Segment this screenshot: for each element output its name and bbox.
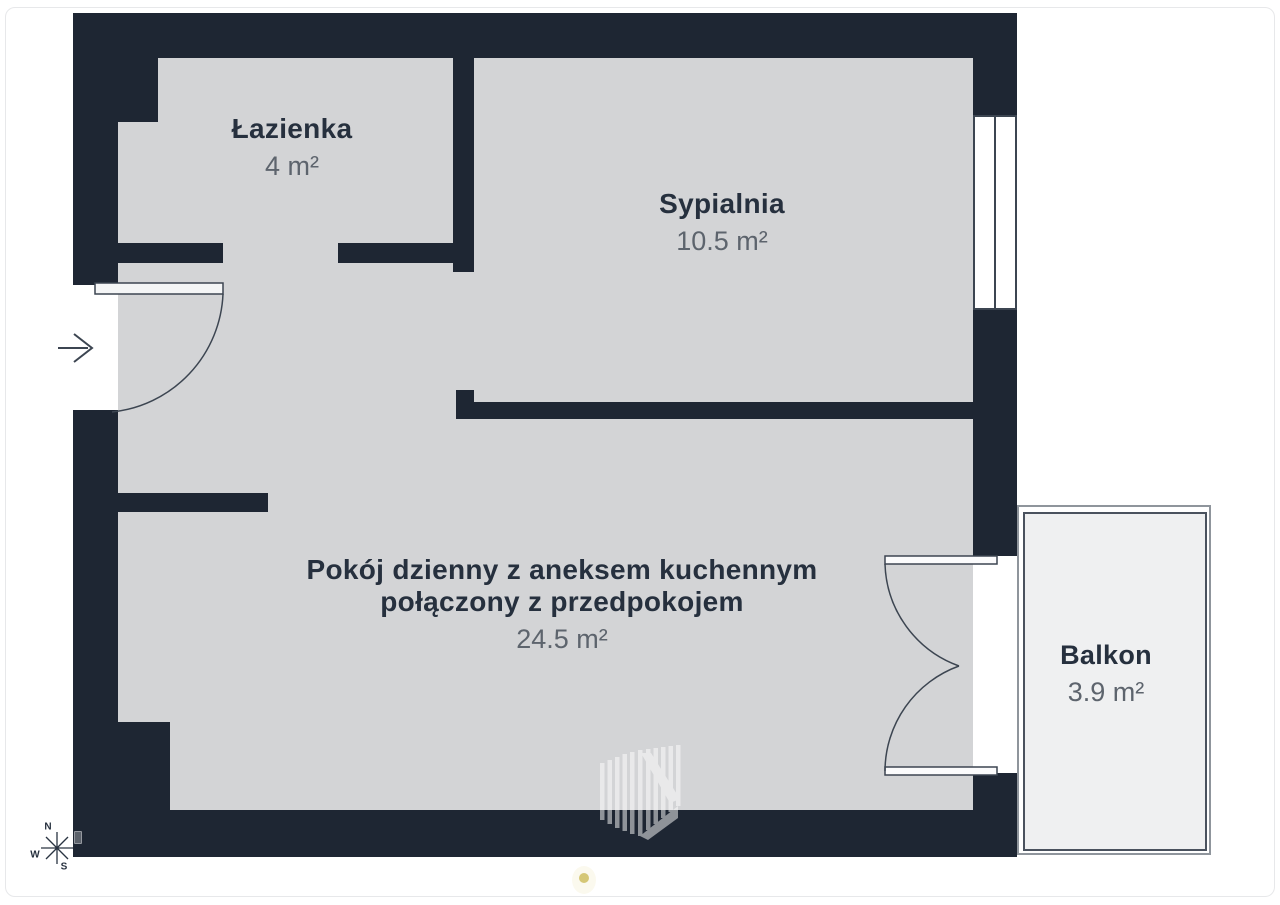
wall-bedroom-south: [456, 402, 973, 419]
wall-bathroom-south-left: [118, 243, 223, 263]
wall-bathroom-south-right: [338, 243, 453, 263]
wall-block-top-left: [73, 13, 158, 122]
balcony-label: Balkon 3.9 m²: [1060, 640, 1152, 708]
compass-south-label: S: [61, 862, 68, 873]
wall-block-bottom-left: [73, 722, 170, 810]
bedroom-name: Sypialnia: [659, 188, 785, 220]
bedroom-window: [973, 115, 1017, 310]
bathroom-area: 4 m²: [232, 151, 353, 182]
bedroom-area: 10.5 m²: [659, 226, 785, 257]
living-room-name-line1: Pokój dzienny z aneksem kuchennym: [307, 554, 818, 586]
wall-right-above-window: [973, 13, 1017, 115]
living-room-name-line2: połączony z przedpokojem: [307, 586, 818, 618]
living-room-area: 24.5 m²: [307, 624, 818, 655]
balcony-door-threshold: [973, 556, 1017, 773]
compass-north-label: N: [44, 822, 51, 833]
wall-right-middle: [973, 310, 1017, 556]
wall-top: [73, 13, 1017, 58]
watermark-dot: [579, 873, 589, 883]
wall-scale-mark: [74, 831, 82, 844]
bedroom-label: Sypialnia 10.5 m²: [659, 188, 785, 257]
wall-hallway-stub: [118, 493, 268, 512]
balcony-area: 3.9 m²: [1060, 677, 1152, 708]
wall-bathroom-bedroom-divider: [453, 58, 474, 272]
living-room-label: Pokój dzienny z aneksem kuchennym połącz…: [307, 554, 818, 655]
wall-bottom: [73, 810, 1017, 857]
bathroom-name: Łazienka: [232, 113, 353, 145]
compass-west-label: W: [30, 850, 39, 861]
window-mullion: [994, 117, 996, 308]
bathroom-label: Łazienka 4 m²: [232, 113, 353, 182]
floorplan-page: N W S Łazienka 4 m² Sypialnia 10.5 m² Po…: [0, 0, 1280, 905]
wall-bedroom-door-jamb: [456, 390, 474, 402]
balcony-name: Balkon: [1060, 640, 1152, 671]
